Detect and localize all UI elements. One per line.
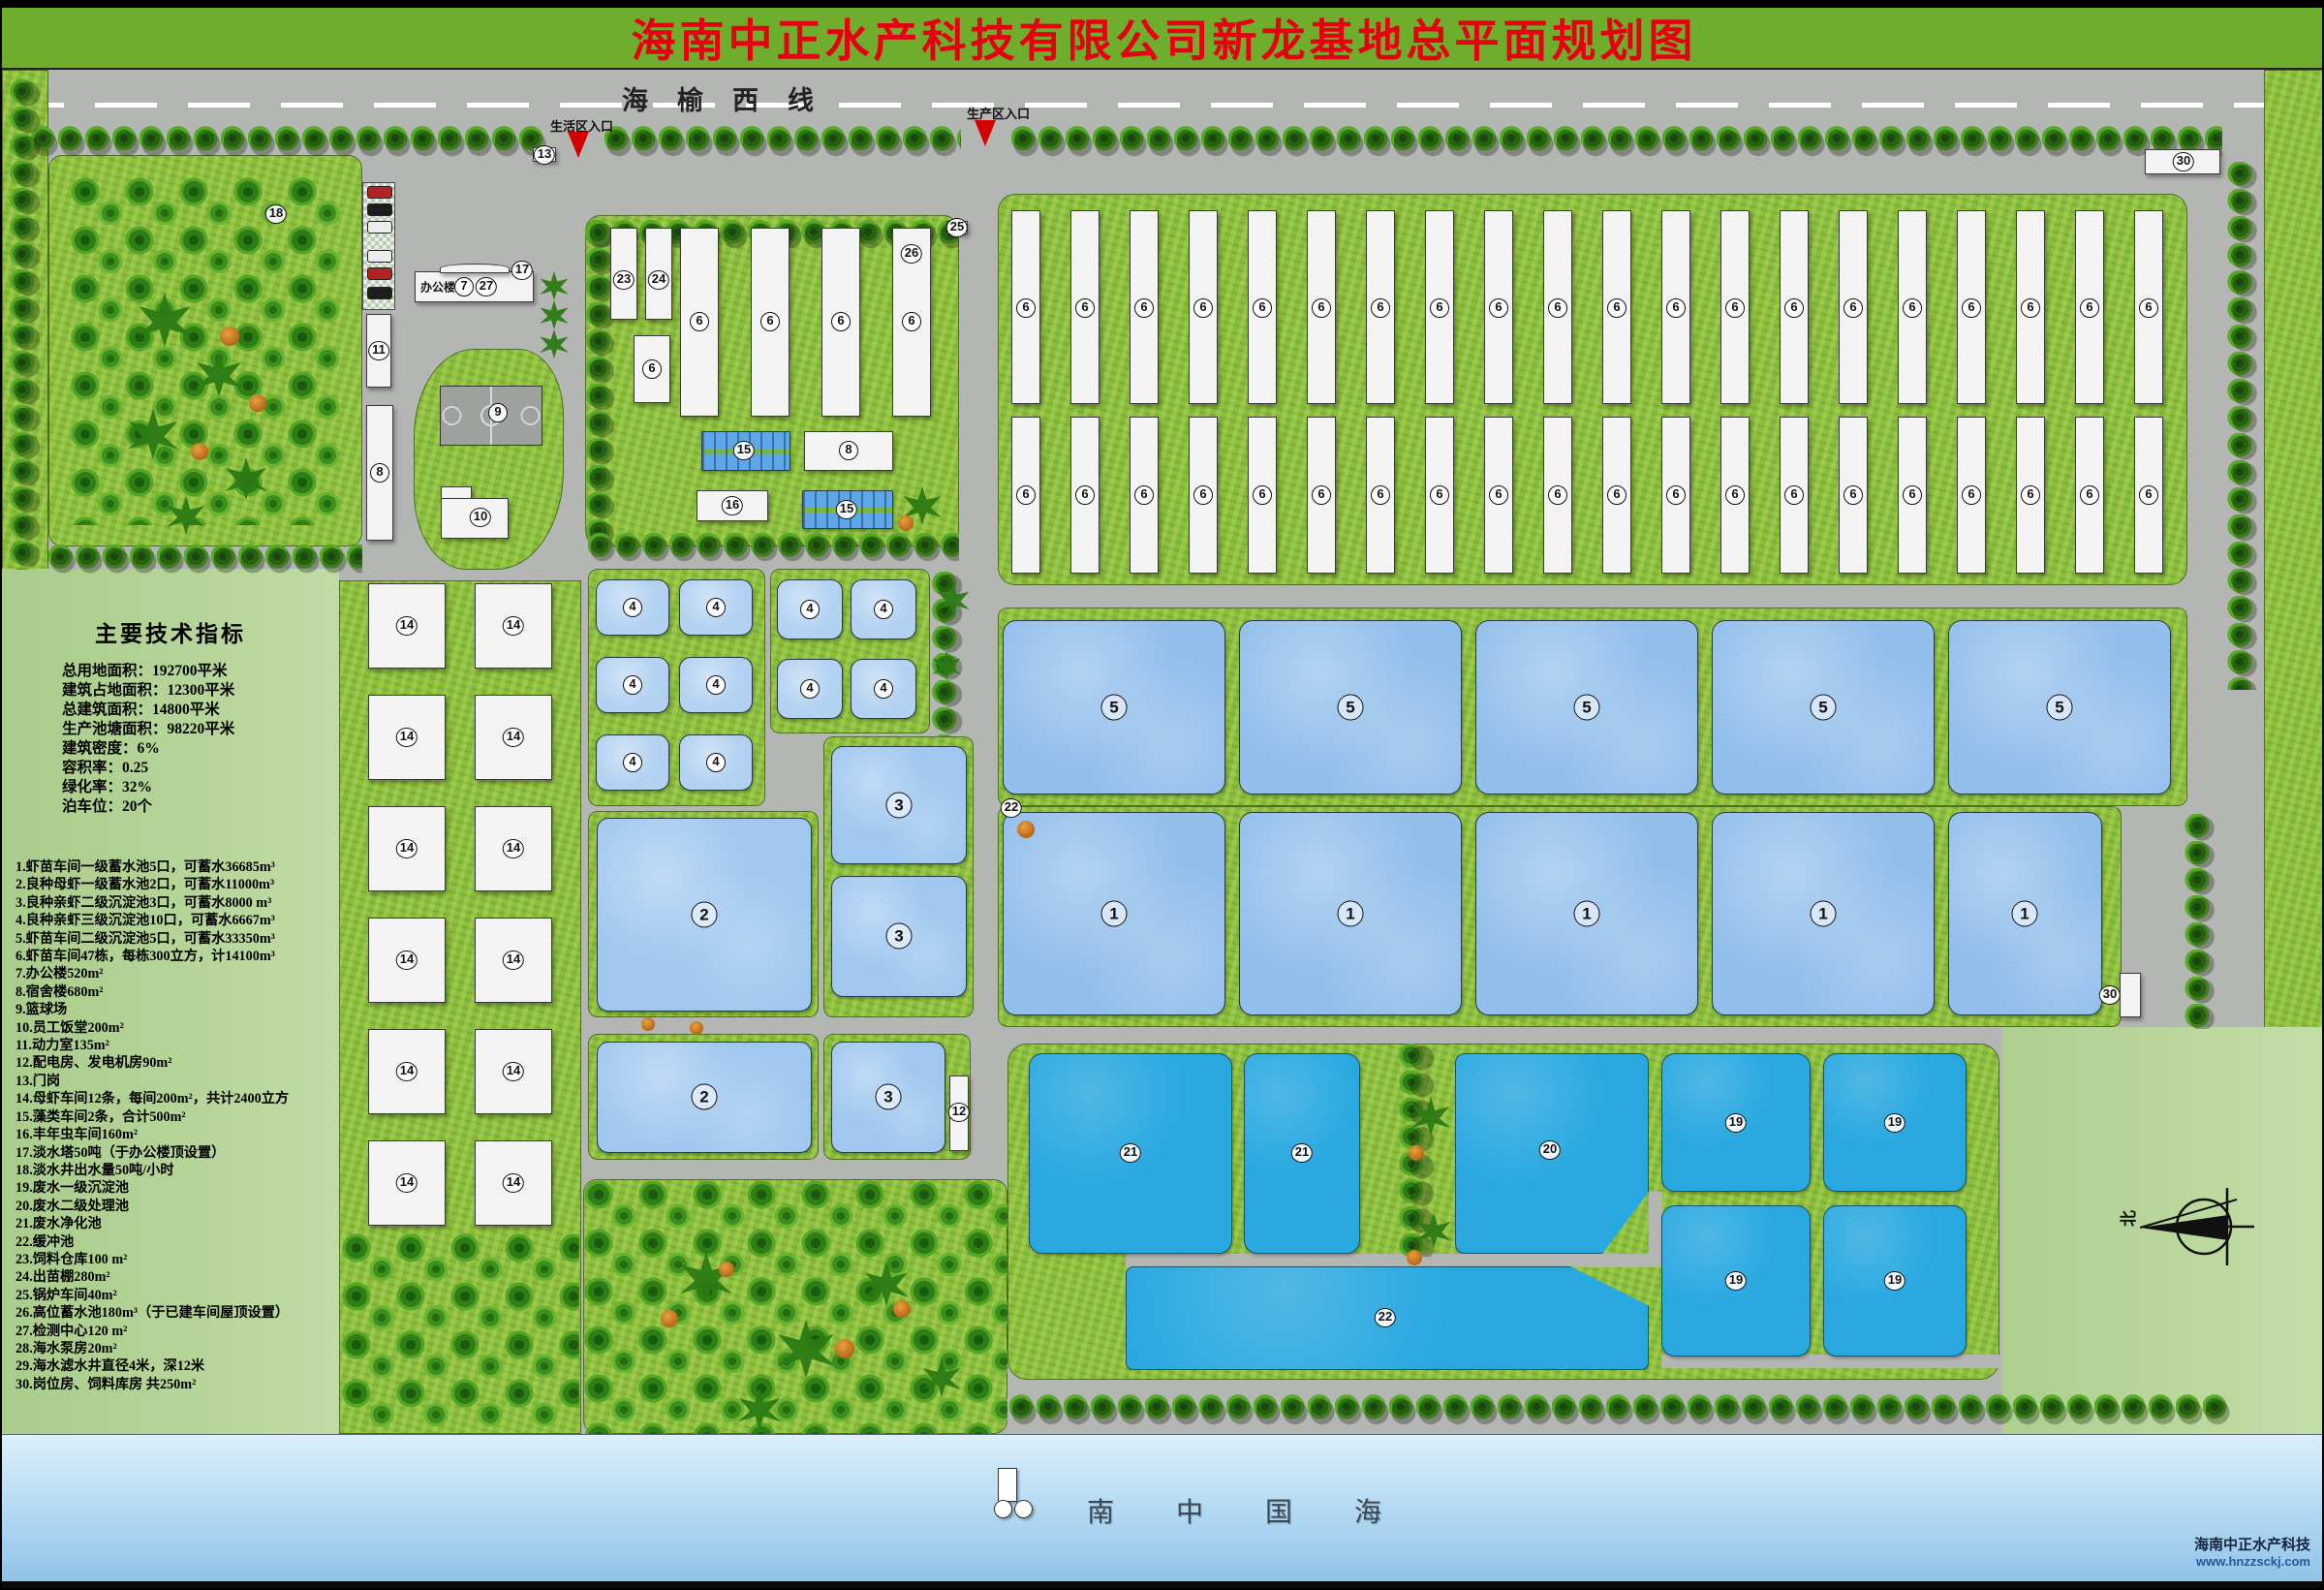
unit-label-6: 6 <box>1607 485 1627 505</box>
unit-label-6: 6 <box>1430 485 1449 505</box>
site-plan-canvas: 海榆西线 生活区入口 生产区入口 18137271791181023242526… <box>0 0 2324 1590</box>
workshop-block-grass <box>998 194 2187 585</box>
east-edge-trees <box>2222 162 2261 690</box>
legend-item: 8.宿舍楼680m² <box>15 983 289 1001</box>
shrub-icon <box>1017 821 1035 838</box>
legend-item: 11.动力室135m² <box>15 1037 289 1054</box>
unit-label-6: 6 <box>1371 298 1390 318</box>
treatment-road <box>1649 1192 1662 1267</box>
legend-item: 24.出苗棚280m² <box>15 1268 289 1286</box>
legend-item: 12.配电房、发电机房90m² <box>15 1054 289 1072</box>
unit-label-6: 6 <box>1903 298 1922 318</box>
unit-label-6: 6 <box>1607 298 1627 318</box>
palm-tree-icon <box>540 271 569 300</box>
sea-label: 南中国海 <box>1087 1491 1443 1530</box>
road-name: 海榆西线 <box>622 79 843 117</box>
unit-label-6: 6 <box>1075 298 1095 318</box>
unit-label-6: 6 <box>1666 298 1686 318</box>
unit-label-4: 4 <box>874 600 893 619</box>
office-canopy <box>440 264 510 273</box>
indicator-line: 容积率：0.25 <box>62 759 234 778</box>
unit-label-6: 6 <box>1075 485 1095 505</box>
unit-label-6: 6 <box>2080 298 2099 318</box>
unit-label-1: 1 <box>1811 901 1837 927</box>
unit-label-4: 4 <box>623 598 642 617</box>
unit-label-6: 6 <box>1962 298 1981 318</box>
unit-label-1: 1 <box>1101 901 1128 927</box>
unit-label-6: 6 <box>1784 485 1804 505</box>
parked-car-icon <box>367 287 392 299</box>
unit-label-6: 6 <box>1489 298 1508 318</box>
unit-label-6: 6 <box>1134 298 1154 318</box>
unit-label-25: 25 <box>946 218 968 237</box>
shrub-icon <box>191 443 208 460</box>
unit-label-4: 4 <box>706 675 726 695</box>
unit-label-4: 4 <box>800 679 820 699</box>
unit-label-6: 6 <box>1253 485 1272 505</box>
unit-label-5: 5 <box>2047 695 2073 721</box>
legend-item: 19.废水一级沉淀池 <box>15 1179 289 1197</box>
unit-label-5: 5 <box>1338 695 1364 721</box>
legend-item: 28.海水泵房20m² <box>15 1340 289 1357</box>
unit-label-3: 3 <box>886 923 913 950</box>
unit-label-6: 6 <box>1016 298 1036 318</box>
sea-filter-well <box>1014 1500 1033 1518</box>
unit-label-6: 6 <box>642 359 662 379</box>
unit-label-6: 6 <box>1016 485 1036 505</box>
unit-label-9: 9 <box>488 403 508 422</box>
unit-label-1: 1 <box>1338 901 1364 927</box>
unit-label-6: 6 <box>1193 485 1213 505</box>
legend-item: 22.缓冲池 <box>15 1233 289 1251</box>
east-edge-trees <box>2180 814 2218 1029</box>
unit-label-6: 6 <box>2021 298 2040 318</box>
shrub-icon <box>220 327 239 346</box>
unit-label-6: 6 <box>831 312 851 331</box>
unit-label-4: 4 <box>800 600 820 619</box>
legend-item: 21.废水净化池 <box>15 1215 289 1232</box>
unit-label-6: 6 <box>2139 298 2158 318</box>
unit-label-6: 6 <box>1725 298 1745 318</box>
legend-list: 1.虾苗车间一级蓄水池5口，可蓄水36685m³2.良种母虾一级蓄水池2口，可蓄… <box>15 858 289 1393</box>
road-center-line <box>2 103 2324 108</box>
unit-label-6: 6 <box>2080 485 2099 505</box>
legend-item: 25.锅炉车间40m² <box>15 1287 289 1304</box>
panel-heading: 主要技术指标 <box>2 615 339 648</box>
boundary-trees <box>1011 118 2222 163</box>
unit-label-4: 4 <box>706 753 726 772</box>
shrub-icon <box>893 1300 911 1318</box>
shrub-icon <box>1409 1145 1424 1161</box>
shrub-icon <box>249 394 266 412</box>
guard-feed-store-building <box>2120 973 2141 1017</box>
parked-car-icon <box>367 267 392 280</box>
footer-website: www.hnzzsckj.com <box>2194 1554 2310 1569</box>
treatment-road <box>1661 1355 2000 1368</box>
legend-item: 16.丰年虫车间160m² <box>15 1126 289 1143</box>
unit-label-6: 6 <box>2021 485 2040 505</box>
unit-label-6: 6 <box>2139 485 2158 505</box>
unit-label-6: 6 <box>1489 485 1508 505</box>
shrub-icon <box>661 1310 678 1327</box>
legend-item: 30.岗位房、饲料库房 共250m² <box>15 1376 289 1393</box>
unit-label-6: 6 <box>902 312 921 331</box>
shrub-icon <box>898 515 914 531</box>
indicator-line: 总建筑面积：14800平米 <box>62 701 234 720</box>
left-entrance-arrow-icon <box>568 132 589 158</box>
office-building-label: 办公楼 <box>420 279 455 296</box>
technical-indicators-panel: 主要技术指标 总用地面积：192700平米建筑占地面积：12300平米总建筑面积… <box>2 569 339 1434</box>
south-woodland-grass <box>583 1179 1007 1434</box>
unit-label-6: 6 <box>1725 485 1745 505</box>
legend-item: 9.篮球场 <box>15 1001 289 1018</box>
boundary-trees <box>604 118 961 163</box>
legend-item: 7.办公楼520m² <box>15 965 289 982</box>
legend-item: 23.饲料仓库100 m² <box>15 1251 289 1268</box>
unit-label-6: 6 <box>760 312 780 331</box>
palm-tree-icon <box>932 651 961 680</box>
legend-item: 18.淡水井出水量50吨/小时 <box>15 1162 289 1179</box>
legend-item: 20.废水二级处理池 <box>15 1198 289 1215</box>
unit-label-13: 13 <box>534 145 555 165</box>
shrub-icon <box>690 1021 703 1035</box>
unit-label-5: 5 <box>1811 695 1837 721</box>
indicator-list: 总用地面积：192700平米建筑占地面积：12300平米总建筑面积：14800平… <box>62 662 234 817</box>
unit-label-1: 1 <box>1574 901 1600 927</box>
unit-label-6: 6 <box>1844 485 1863 505</box>
legend-item: 3.良种亲虾二级沉淀池3口，可蓄水8000 m³ <box>15 894 289 912</box>
sea-pump-house <box>998 1468 1017 1502</box>
indicator-line: 建筑密度：6% <box>62 739 234 759</box>
palm-tree-icon <box>937 583 970 616</box>
legend-item: 5.虾苗车间二级沉淀池5口，可蓄水33350m³ <box>15 930 289 948</box>
unit-label-8: 8 <box>839 441 858 460</box>
indicator-line: 泊车位：20个 <box>62 797 234 817</box>
footer-company: 海南中正水产科技 <box>2194 1534 2310 1554</box>
shrub-icon <box>835 1339 854 1358</box>
parked-car-icon <box>367 250 392 263</box>
sea-filter-well <box>994 1500 1012 1518</box>
unit-label-6: 6 <box>1430 298 1449 318</box>
unit-label-6: 6 <box>1312 485 1331 505</box>
shrub-icon <box>1407 1250 1422 1265</box>
legend-item: 13.门岗 <box>15 1073 289 1090</box>
unit-label-8: 8 <box>370 463 389 483</box>
footer: 海南中正水产科技 www.hnzzsckj.com <box>2194 1534 2310 1569</box>
unit-label-2: 2 <box>692 902 718 928</box>
compass-icon: 北 <box>2119 1180 2288 1273</box>
unit-label-6: 6 <box>1548 485 1567 505</box>
indicator-line: 总用地面积：192700平米 <box>62 662 234 681</box>
title-bar: 海南中正水产科技有限公司新龙基地总平面规划图 <box>2 2 2324 70</box>
parked-car-icon <box>367 221 392 234</box>
unit-label-11: 11 <box>368 341 389 360</box>
living-area-grass <box>48 155 362 546</box>
legend-item: 29.海水滤水井直径4米，深12米 <box>15 1357 289 1375</box>
shrub-icon <box>719 1262 734 1277</box>
unit-label-6: 6 <box>1784 298 1804 318</box>
sea-area: 南中国海 海南中正水产科技 www.hnzzsckj.com <box>2 1434 2324 1582</box>
unit-label-1: 1 <box>2012 901 2038 927</box>
compass-north-label: 北 <box>2120 1210 2138 1227</box>
parked-car-icon <box>367 203 392 216</box>
parked-car-icon <box>367 186 392 199</box>
legend-item: 17.淡水塔50吨（于办公楼顶设置） <box>15 1144 289 1162</box>
unit-label-4: 4 <box>623 675 642 695</box>
unit-label-6: 6 <box>1844 298 1863 318</box>
unit-label-4: 4 <box>623 753 642 772</box>
unit-label-6: 6 <box>1666 485 1686 505</box>
legend-item: 1.虾苗车间一级蓄水池5口，可蓄水36685m³ <box>15 858 289 876</box>
palm-tree-icon <box>540 300 569 329</box>
unit-label-6: 6 <box>1193 298 1213 318</box>
unit-label-5: 5 <box>1101 695 1128 721</box>
unit-label-6: 6 <box>1371 485 1390 505</box>
treatment-road <box>1126 1254 1661 1267</box>
unit-label-2: 2 <box>692 1084 718 1110</box>
unit-label-3: 3 <box>886 793 913 819</box>
unit-label-6: 6 <box>1312 298 1331 318</box>
indicator-line: 绿化率：32% <box>62 778 234 797</box>
unit-label-6: 6 <box>1134 485 1154 505</box>
palm-tree-icon <box>540 329 569 359</box>
legend-item: 6.虾苗车间47栋，每栋300立方，计14100m³ <box>15 948 289 965</box>
legend-item: 4.良种亲虾三级沉淀池10口，可蓄水6667m³ <box>15 912 289 929</box>
shrub-icon <box>641 1017 655 1031</box>
unit-label-6: 6 <box>690 312 709 331</box>
unit-label-6: 6 <box>1962 485 1981 505</box>
unit-label-4: 4 <box>706 598 726 617</box>
unit-label-5: 5 <box>1574 695 1600 721</box>
unit-label-7: 7 <box>454 277 474 296</box>
legend-item: 14.母虾车间12条，每间200m²，共计2400立方 <box>15 1090 289 1107</box>
unit-label-6: 6 <box>1903 485 1922 505</box>
bottom-border-bar <box>2 1581 2324 1590</box>
legend-item: 27.检测中心120 m² <box>15 1323 289 1340</box>
indicator-line: 生产池塘面积：98220平米 <box>62 720 234 739</box>
legend-item: 15.藻类车间2条，合计500m² <box>15 1108 289 1126</box>
indicator-line: 建筑占地面积：12300平米 <box>62 681 234 701</box>
unit-label-4: 4 <box>874 679 893 699</box>
unit-label-3: 3 <box>876 1084 902 1110</box>
right-entrance-arrow-icon <box>975 120 996 146</box>
legend-item: 2.良种母虾一级蓄水池2口，可蓄水11000m³ <box>15 876 289 893</box>
unit-label-6: 6 <box>1253 298 1272 318</box>
legend-item: 26.高位蓄水池180m³（于已建车间屋顶设置） <box>15 1304 289 1322</box>
legend-item: 10.员工饭堂200m² <box>15 1019 289 1037</box>
plan-title: 海南中正水产科技有限公司新龙基地总平面规划图 <box>632 6 1697 70</box>
unit-label-6: 6 <box>1548 298 1567 318</box>
